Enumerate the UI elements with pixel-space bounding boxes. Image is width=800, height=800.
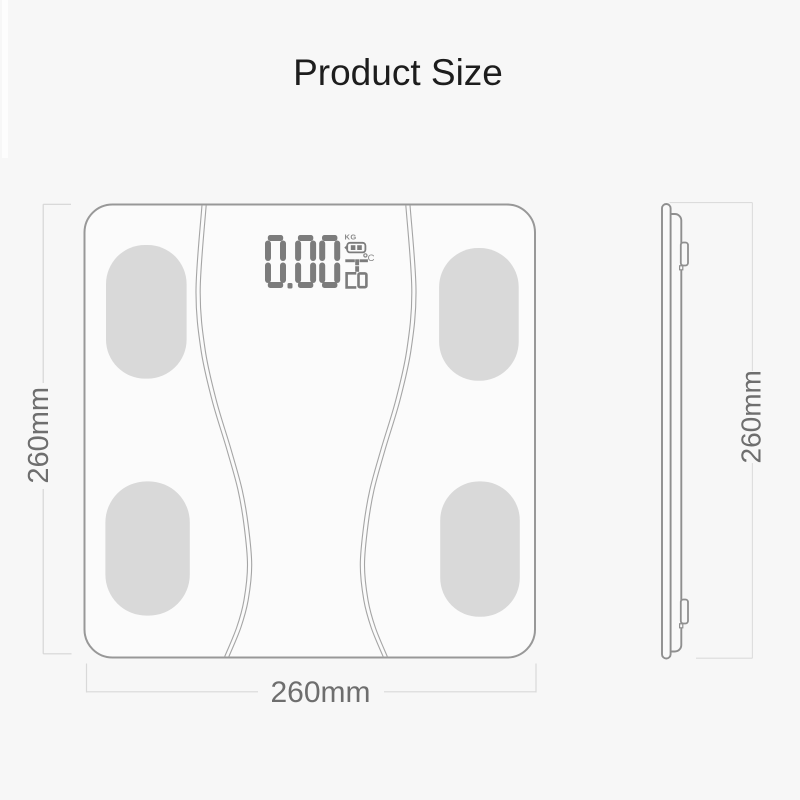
svg-text:260mm: 260mm [270,676,370,709]
svg-text:260mm: 260mm [23,387,55,484]
svg-text:Product Size: Product Size [293,52,503,93]
svg-text:C: C [368,253,375,264]
svg-text:260mm: 260mm [736,370,767,463]
svg-text:KG: KG [345,233,357,242]
